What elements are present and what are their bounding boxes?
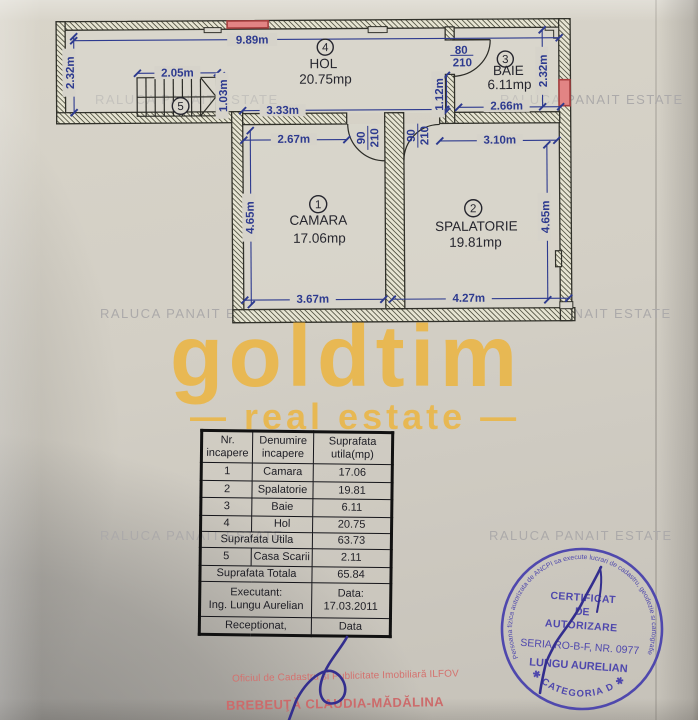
svg-text:SERIA RO-B-F, NR. 0977: SERIA RO-B-F, NR. 0977 [520,637,640,657]
svg-text:AUTORIZARE: AUTORIZARE [545,617,618,634]
